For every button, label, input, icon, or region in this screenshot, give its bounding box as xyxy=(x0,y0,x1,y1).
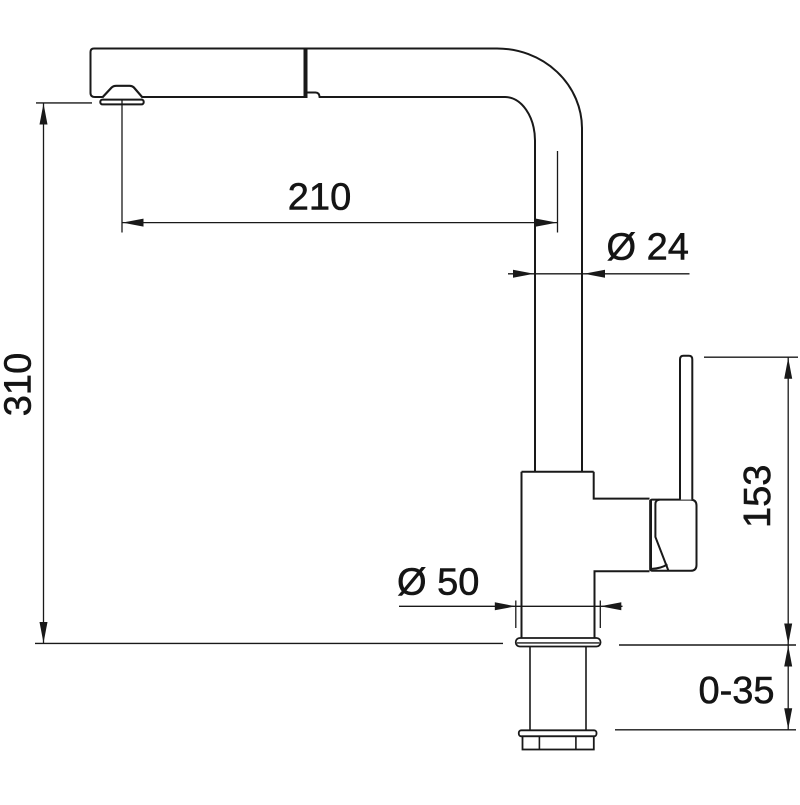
svg-text:310: 310 xyxy=(0,353,40,416)
svg-text:0-35: 0-35 xyxy=(698,670,774,712)
svg-text:210: 210 xyxy=(288,177,351,219)
svg-text:153: 153 xyxy=(737,465,779,528)
svg-text:Ø 50: Ø 50 xyxy=(397,561,479,603)
svg-text:Ø 24: Ø 24 xyxy=(607,227,689,269)
